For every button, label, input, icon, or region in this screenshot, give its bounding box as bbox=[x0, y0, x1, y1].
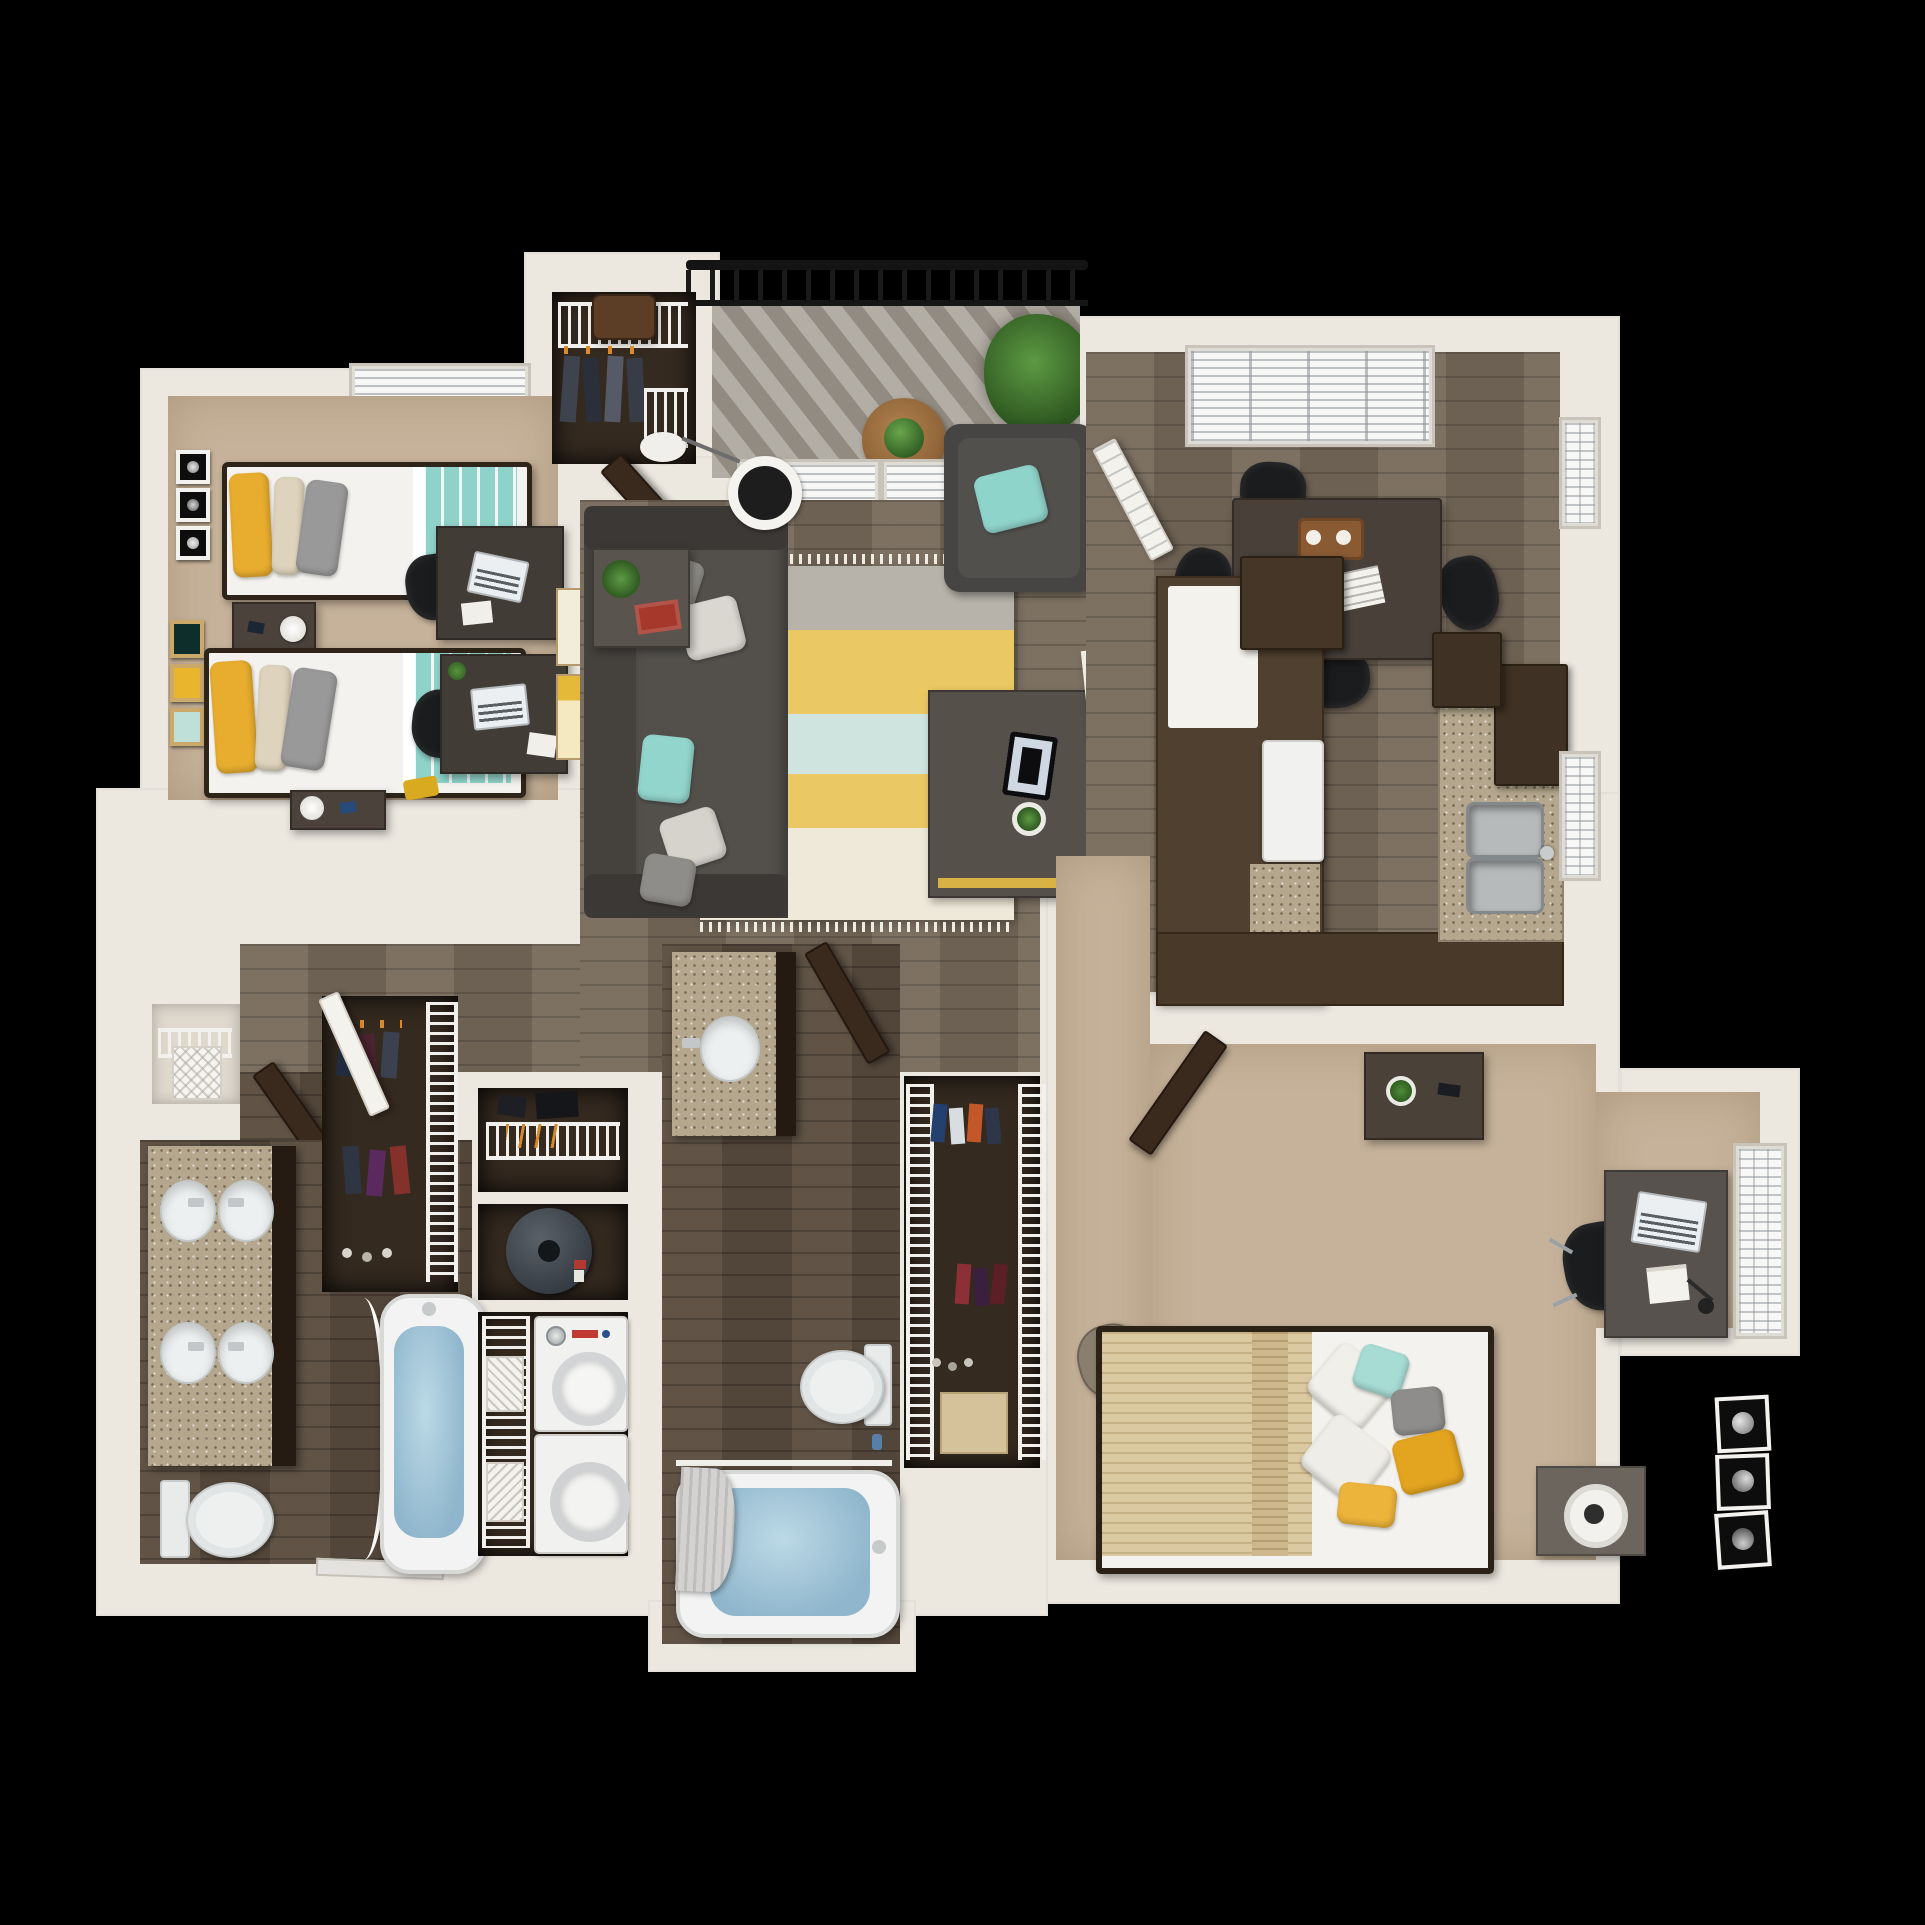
red-book bbox=[634, 599, 682, 635]
utility-closet bbox=[478, 1088, 628, 1192]
moon-art bbox=[187, 499, 199, 511]
faucet bbox=[188, 1198, 204, 1207]
hanging-clothes bbox=[955, 1264, 972, 1305]
desk-lamp-head bbox=[1698, 1298, 1714, 1314]
toilet-bowl bbox=[800, 1350, 884, 1424]
water-heater-cap bbox=[538, 1240, 560, 1262]
desk-plant bbox=[448, 662, 466, 680]
toilet-bowl bbox=[186, 1482, 274, 1558]
dining-window bbox=[1188, 348, 1432, 444]
nightstand-bedroom2 bbox=[1536, 1466, 1646, 1556]
phone bbox=[339, 801, 356, 814]
walkin-closet2 bbox=[904, 1076, 1040, 1468]
washer-button-blue bbox=[602, 1330, 610, 1338]
vanity-sink bbox=[700, 1016, 760, 1082]
bath-water bbox=[394, 1326, 464, 1538]
pillow-gray bbox=[1390, 1385, 1447, 1436]
floor-lamp-shade bbox=[728, 456, 802, 530]
bedroom1-floor bbox=[168, 396, 558, 800]
hanging-clothes bbox=[604, 356, 623, 423]
stored-item bbox=[497, 1094, 528, 1118]
duffel-bag bbox=[592, 294, 656, 340]
broom-handles bbox=[506, 1124, 566, 1148]
fan-hub bbox=[1584, 1504, 1604, 1524]
basket bbox=[172, 1046, 222, 1100]
vanity-sink bbox=[218, 1322, 274, 1384]
side-table bbox=[592, 548, 690, 648]
plant bbox=[602, 560, 640, 598]
bathtub-1 bbox=[380, 1294, 486, 1574]
heater-tag bbox=[574, 1260, 586, 1269]
poster-art-frame bbox=[170, 708, 204, 746]
stored-item bbox=[535, 1091, 579, 1120]
hanging-clothes bbox=[930, 1103, 947, 1142]
hanging-clothes bbox=[560, 356, 581, 423]
vanity-sink bbox=[218, 1180, 274, 1242]
plant bbox=[1390, 1080, 1412, 1102]
washer-door bbox=[552, 1352, 626, 1426]
hanging-clothes bbox=[366, 1149, 386, 1196]
dresser bbox=[1364, 1052, 1484, 1140]
faucet bbox=[228, 1198, 244, 1207]
shoes bbox=[964, 1358, 973, 1367]
queen-bed bbox=[1096, 1326, 1494, 1574]
wall-cabinet bbox=[1432, 632, 1502, 708]
laptop bbox=[470, 683, 530, 731]
tub-faucet bbox=[422, 1302, 436, 1316]
tablet bbox=[1002, 731, 1058, 801]
faucet bbox=[188, 1342, 204, 1351]
hanging-clothes bbox=[984, 1107, 1001, 1144]
notepad bbox=[1646, 1264, 1690, 1304]
moon-art-frame bbox=[176, 488, 210, 522]
hanging-clothes bbox=[342, 1146, 361, 1195]
pillow-yellow bbox=[1336, 1481, 1398, 1529]
pillow-yellow bbox=[228, 472, 273, 578]
kitchen-sink bbox=[1466, 802, 1538, 910]
washer-buttons bbox=[572, 1330, 598, 1338]
pillow-yellow bbox=[209, 660, 259, 775]
pillow-yellow bbox=[1390, 1427, 1466, 1497]
kitchen-counter-south bbox=[1156, 932, 1564, 1006]
washer-knob bbox=[546, 1326, 566, 1346]
hanging-clothes bbox=[626, 358, 645, 423]
hanging-clothes bbox=[972, 1267, 989, 1306]
hanging-clothes bbox=[380, 1031, 399, 1078]
vanity-cabinet-edge bbox=[272, 1146, 296, 1466]
railing-balusters bbox=[686, 270, 1088, 302]
desk-2 bbox=[440, 654, 568, 774]
hanger-hooks bbox=[564, 346, 648, 354]
hanging-clothes bbox=[582, 358, 602, 423]
table-lamp bbox=[300, 796, 324, 820]
linen-closet bbox=[152, 1004, 240, 1104]
pillow-gray bbox=[638, 852, 698, 908]
armchair bbox=[944, 424, 1094, 592]
desk-bedroom2 bbox=[1604, 1170, 1728, 1338]
laundry-basket bbox=[486, 1462, 524, 1522]
sink-basin bbox=[1466, 802, 1544, 858]
sink-basin bbox=[1466, 858, 1544, 914]
nightstand bbox=[290, 790, 386, 830]
laptop bbox=[1630, 1191, 1707, 1253]
faucet bbox=[682, 1038, 700, 1048]
washer bbox=[534, 1316, 628, 1432]
refrigerator bbox=[1262, 740, 1324, 862]
desk-1 bbox=[436, 526, 564, 640]
moon-phase-frame bbox=[1715, 1453, 1771, 1511]
laundry-closet bbox=[478, 1312, 628, 1556]
tub-faucet bbox=[872, 1540, 886, 1554]
phone bbox=[1437, 1083, 1460, 1098]
pillow-teal bbox=[637, 733, 696, 804]
wire-shelf bbox=[1018, 1084, 1046, 1460]
cup bbox=[1306, 530, 1321, 545]
serving-tray bbox=[1298, 518, 1364, 560]
floor-lamp-base bbox=[640, 432, 686, 462]
hanging-clothes bbox=[967, 1104, 984, 1143]
table-lamp bbox=[280, 616, 306, 642]
moon-art bbox=[187, 461, 199, 473]
poster-art-frame bbox=[170, 620, 204, 658]
balcony-plant bbox=[984, 314, 1080, 434]
plant bbox=[1017, 807, 1041, 831]
blanket-fold bbox=[1252, 1332, 1288, 1556]
hanging-clothes bbox=[390, 1145, 411, 1194]
moon-phase-frame bbox=[1714, 1510, 1772, 1570]
moon-art bbox=[1731, 1527, 1754, 1550]
shoes bbox=[342, 1248, 352, 1258]
moon-art bbox=[1731, 1411, 1754, 1434]
desk-paper bbox=[527, 732, 558, 758]
closet-bench bbox=[940, 1392, 1008, 1454]
railing-top-bar bbox=[686, 260, 1088, 270]
dryer-door bbox=[550, 1462, 630, 1542]
bath1-vanity bbox=[148, 1146, 296, 1466]
bedroom2-window bbox=[1736, 1146, 1784, 1336]
moon-phase-frame bbox=[1715, 1395, 1772, 1454]
moon-art bbox=[187, 537, 199, 549]
wall-cabinet bbox=[1494, 664, 1568, 786]
water-heater-closet bbox=[478, 1204, 628, 1300]
shower-rod bbox=[676, 1460, 892, 1466]
moon-art-frame bbox=[176, 450, 210, 484]
rug-fringe bbox=[700, 922, 1014, 932]
patio-table-plant bbox=[884, 418, 924, 458]
shoes bbox=[948, 1362, 957, 1371]
balcony-railing bbox=[686, 260, 1088, 308]
bath2-vanity bbox=[672, 952, 796, 1136]
wall-cabinet bbox=[1240, 556, 1344, 650]
vanity-cabinet-edge bbox=[776, 952, 796, 1136]
toilet-brush bbox=[872, 1434, 882, 1450]
heater-tag-white bbox=[574, 1270, 584, 1282]
shoes bbox=[932, 1358, 941, 1367]
laundry-basket bbox=[486, 1356, 524, 1412]
sink-faucet bbox=[1540, 846, 1554, 860]
wire-shelf bbox=[426, 1002, 458, 1282]
vanity-sink bbox=[160, 1322, 216, 1384]
dining-side-window bbox=[1562, 420, 1598, 526]
poster-art-frame bbox=[170, 664, 204, 702]
hanging-clothes bbox=[990, 1263, 1008, 1304]
moon-art bbox=[1732, 1470, 1755, 1493]
laptop bbox=[466, 551, 530, 604]
phone bbox=[247, 621, 265, 635]
desk-paper bbox=[461, 600, 493, 625]
dryer bbox=[534, 1434, 628, 1554]
floor-plan-3d: Fireplace bbox=[0, 0, 1925, 1925]
kitchen-window bbox=[1562, 754, 1598, 878]
shoes bbox=[382, 1248, 392, 1258]
moon-art-frame bbox=[176, 526, 210, 560]
faucet bbox=[228, 1342, 244, 1351]
shoes bbox=[362, 1252, 372, 1262]
vanity-sink bbox=[160, 1180, 216, 1242]
hanging-clothes bbox=[949, 1108, 965, 1145]
cup bbox=[1336, 530, 1351, 545]
